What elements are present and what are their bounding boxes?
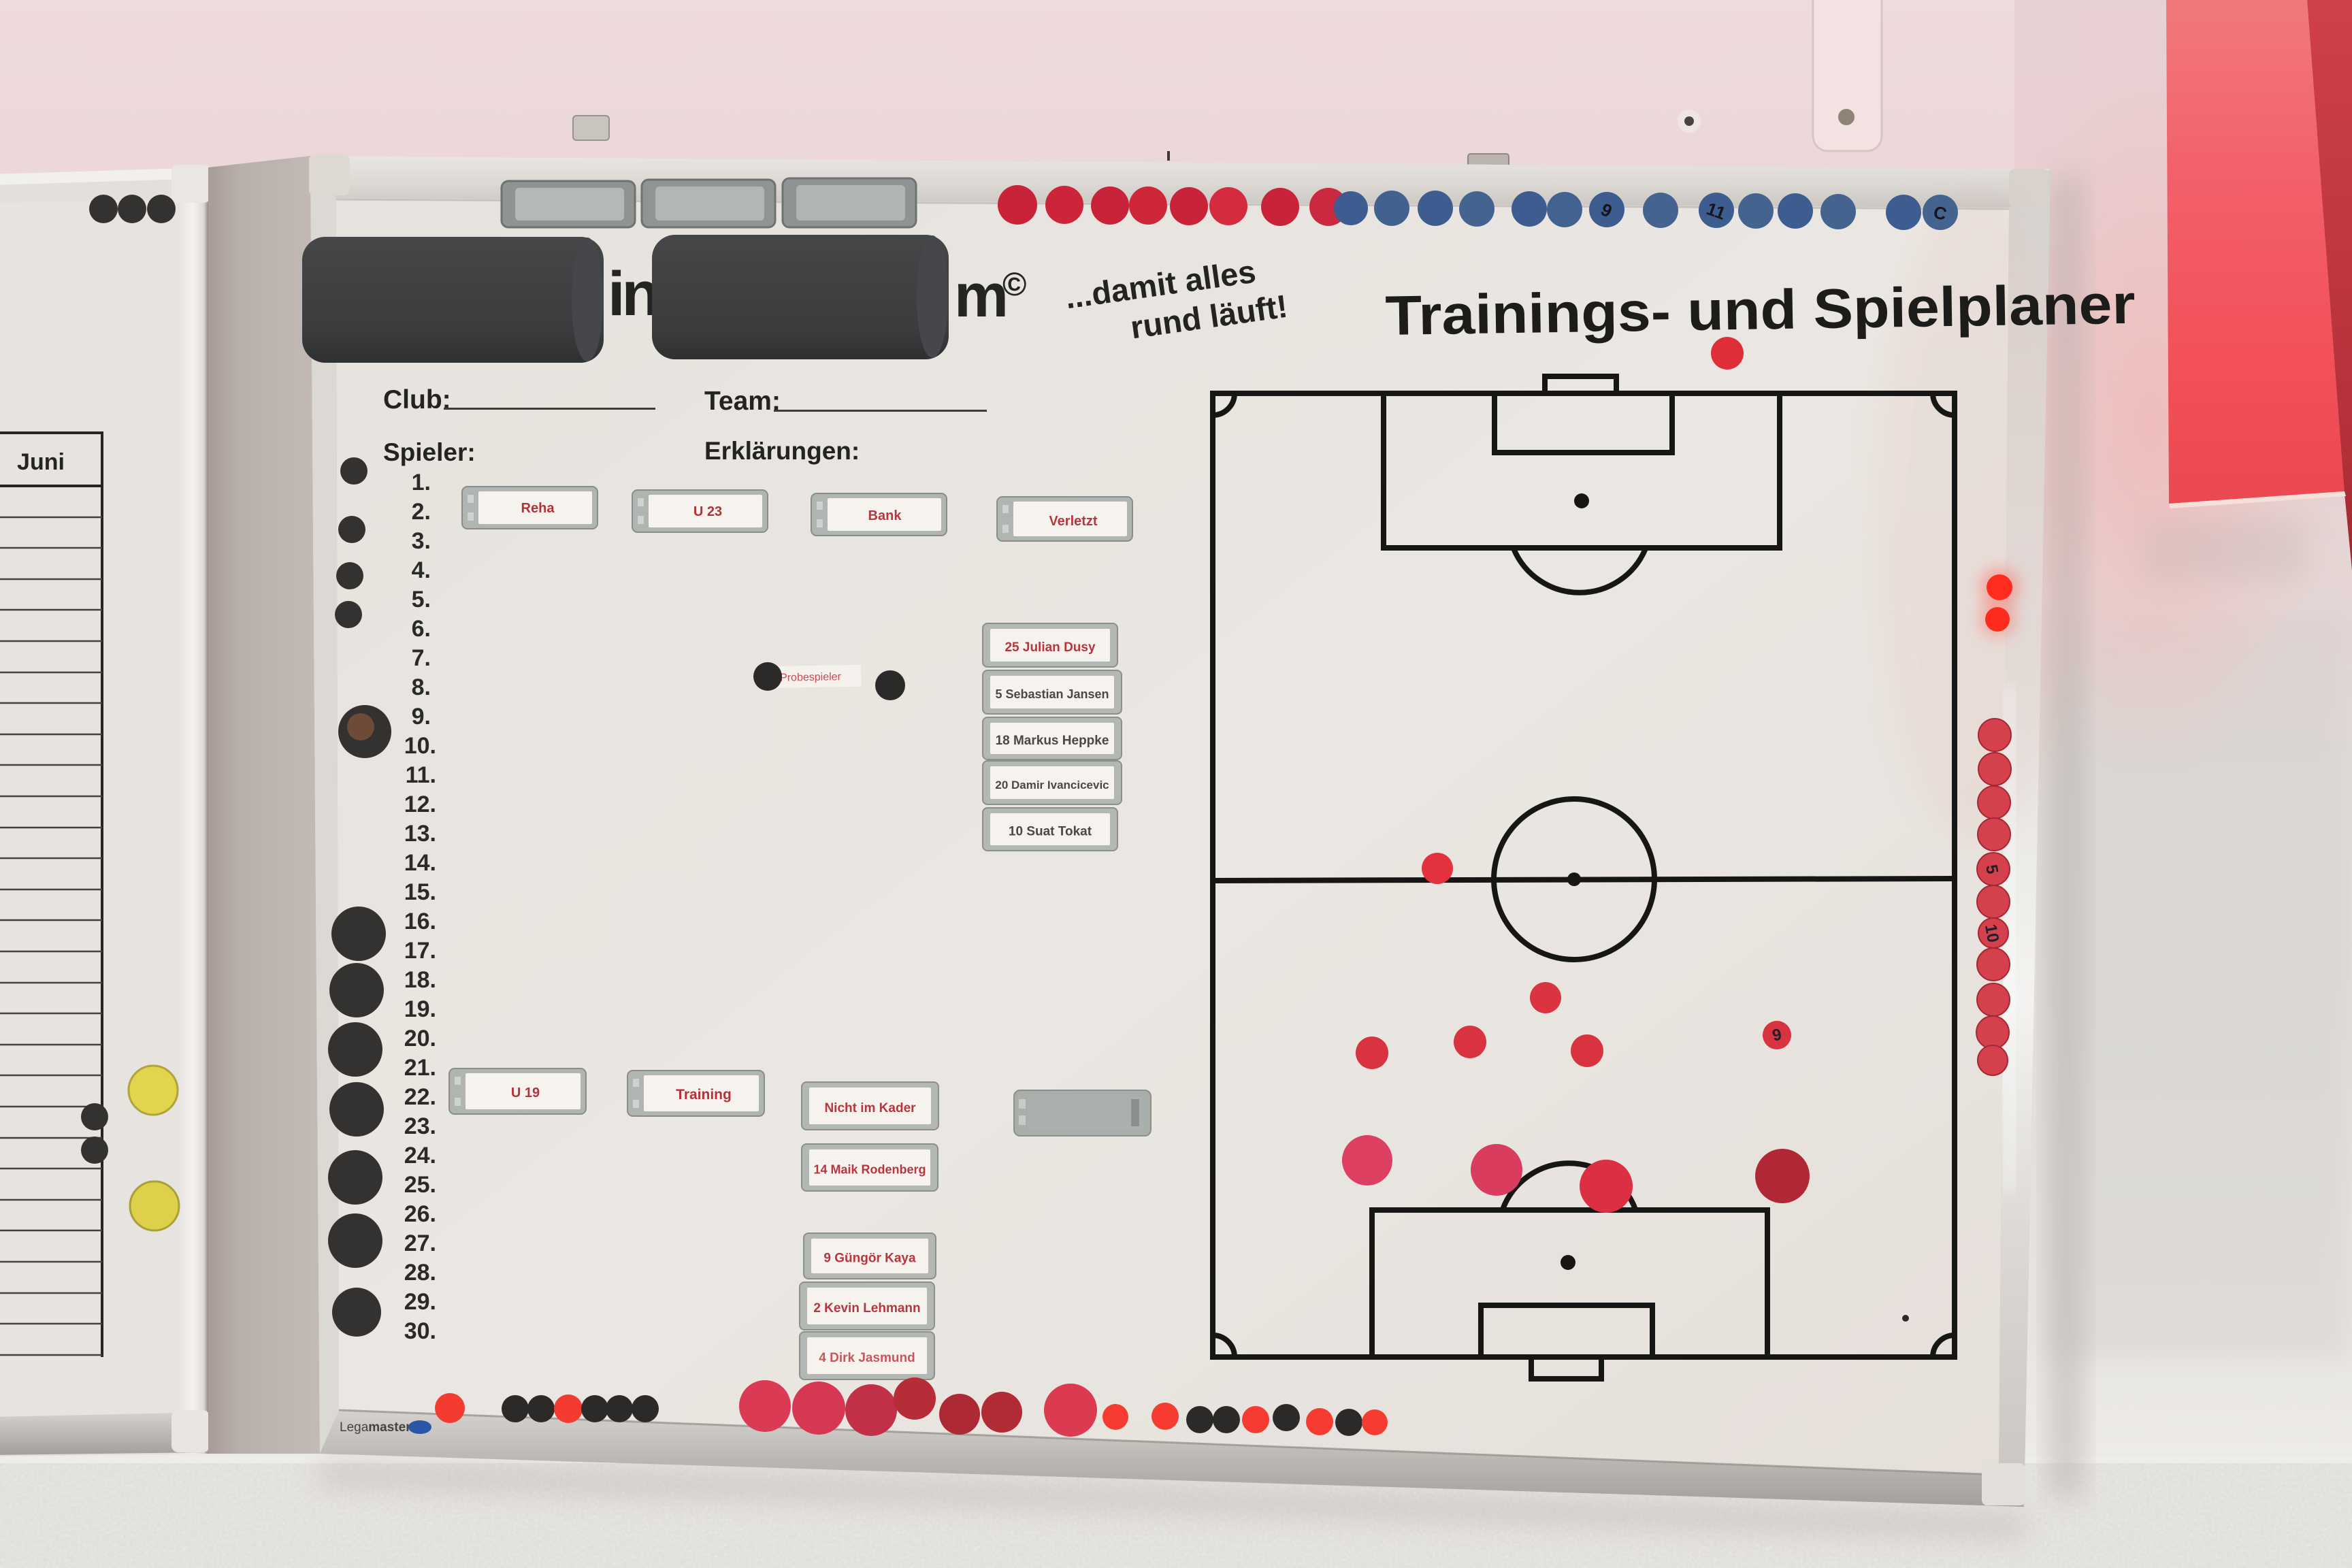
svg-text:6.: 6. [412, 616, 431, 642]
svg-text:10 Suat Tokat: 10 Suat Tokat [1009, 825, 1092, 839]
svg-text:1.: 1. [412, 470, 431, 495]
svg-text:14 Maik Rodenberg: 14 Maik Rodenberg [813, 1163, 926, 1177]
svg-text:23.: 23. [404, 1113, 436, 1139]
svg-text:5 Sebastian Jansen: 5 Sebastian Jansen [995, 687, 1109, 701]
svg-text:4 Dirk Jasmund: 4 Dirk Jasmund [819, 1351, 915, 1365]
svg-text:15.: 15. [404, 879, 436, 905]
svg-text:Team:: Team: [704, 387, 781, 416]
svg-text:9 Güngör Kaya: 9 Güngör Kaya [823, 1252, 916, 1266]
svg-text:22.: 22. [404, 1084, 436, 1110]
svg-text:16.: 16. [404, 909, 436, 934]
svg-text:20.: 20. [404, 1026, 436, 1051]
svg-text:2.: 2. [412, 499, 431, 525]
svg-text:Erklärungen:: Erklärungen: [704, 437, 860, 465]
svg-text:2 Kevin Lehmann: 2 Kevin Lehmann [813, 1301, 920, 1316]
svg-text:26.: 26. [404, 1201, 436, 1227]
svg-text:in: in [608, 259, 657, 329]
svg-text:3.: 3. [412, 528, 431, 554]
svg-text:5.: 5. [412, 587, 431, 612]
svg-text:Legamaster: Legamaster [340, 1420, 411, 1435]
svg-text:U 19: U 19 [511, 1085, 540, 1100]
svg-text:Nicht im Kader: Nicht im Kader [824, 1101, 916, 1115]
svg-text:4.: 4. [412, 557, 431, 583]
svg-text:19.: 19. [404, 996, 436, 1022]
svg-text:Juni: Juni [17, 449, 65, 475]
svg-text:18 Markus Heppke: 18 Markus Heppke [996, 734, 1109, 748]
svg-text:U 23: U 23 [693, 504, 722, 519]
svg-text:13.: 13. [404, 821, 436, 847]
svg-text:10: 10 [1981, 923, 2002, 944]
svg-text:Training: Training [676, 1087, 732, 1102]
svg-text:24.: 24. [404, 1143, 436, 1169]
svg-text:11.: 11. [406, 762, 436, 788]
svg-text:Bank: Bank [868, 508, 902, 523]
svg-text:©: © [1002, 267, 1026, 303]
svg-text:7.: 7. [412, 645, 431, 671]
svg-text:25 Julian Dusy: 25 Julian Dusy [1004, 640, 1095, 655]
svg-text:12.: 12. [404, 791, 436, 817]
svg-text:Club:: Club: [383, 385, 451, 414]
svg-text:30.: 30. [404, 1318, 436, 1344]
svg-text:8.: 8. [412, 674, 431, 700]
svg-text:m: m [954, 262, 1009, 330]
svg-text:Spieler:: Spieler: [383, 438, 476, 466]
svg-text:Reha: Reha [521, 501, 555, 516]
svg-text:9.: 9. [412, 704, 431, 730]
svg-text:27.: 27. [404, 1230, 436, 1256]
svg-text:Trainings- und Spielplaner: Trainings- und Spielplaner [1385, 274, 2136, 347]
svg-text:25.: 25. [404, 1172, 436, 1198]
svg-text:14.: 14. [404, 850, 436, 876]
svg-text:21.: 21. [404, 1055, 436, 1081]
svg-text:28.: 28. [404, 1260, 436, 1286]
svg-text:17.: 17. [404, 938, 436, 964]
svg-text:20 Damir Ivancicevic: 20 Damir Ivancicevic [995, 779, 1109, 791]
svg-text:29.: 29. [404, 1289, 436, 1315]
svg-text:18.: 18. [404, 967, 436, 993]
svg-text:10.: 10. [404, 733, 436, 759]
svg-text:Probespieler: Probespieler [780, 671, 842, 684]
svg-text:Verletzt: Verletzt [1049, 514, 1097, 529]
